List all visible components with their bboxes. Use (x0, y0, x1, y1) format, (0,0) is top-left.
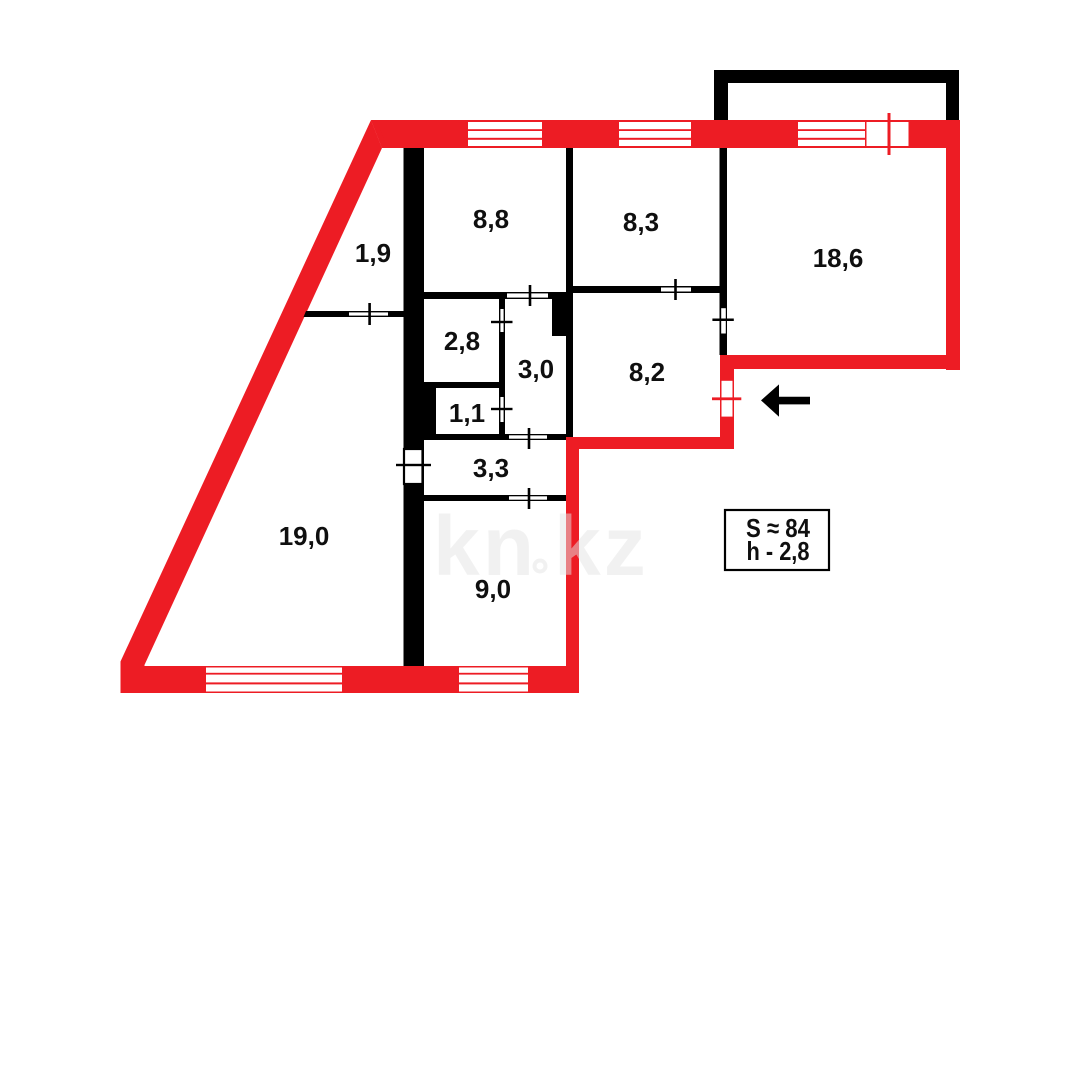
svg-text:2,8: 2,8 (444, 326, 480, 356)
svg-text:kz: kz (554, 499, 649, 593)
svg-text:1,9: 1,9 (355, 238, 391, 268)
svg-text:19,0: 19,0 (279, 521, 330, 551)
svg-text:1,1: 1,1 (449, 398, 485, 428)
svg-text:3,3: 3,3 (473, 453, 509, 483)
svg-text:18,6: 18,6 (813, 243, 864, 273)
svg-text:3,0: 3,0 (518, 354, 554, 384)
svg-text:8,8: 8,8 (473, 204, 509, 234)
svg-text:8,2: 8,2 (629, 357, 665, 387)
svg-text:h - 2,8: h - 2,8 (747, 536, 810, 566)
svg-text:9,0: 9,0 (475, 574, 511, 604)
svg-text:8,3: 8,3 (623, 207, 659, 237)
